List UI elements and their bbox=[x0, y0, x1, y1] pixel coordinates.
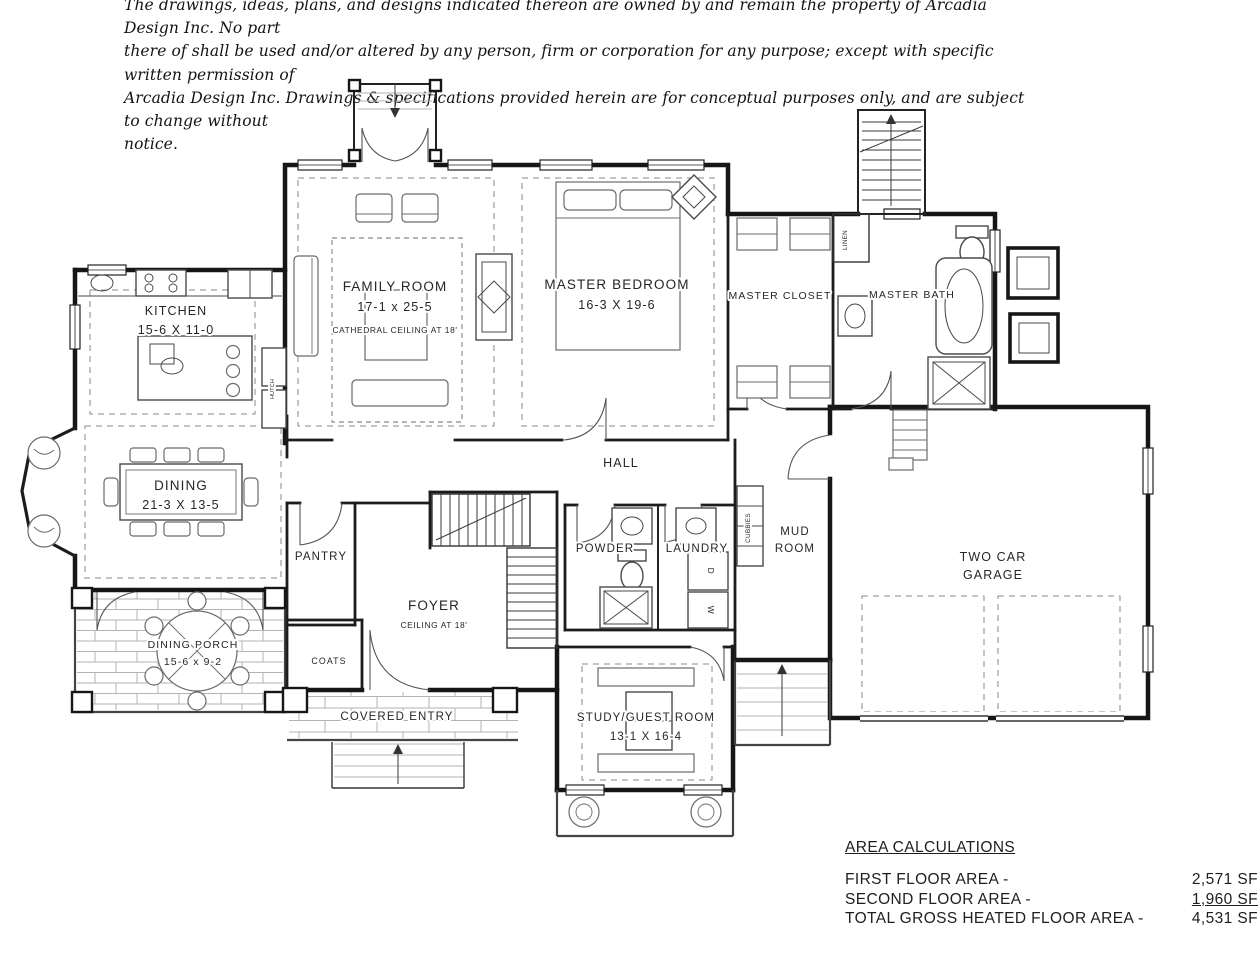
hall-label: HALL bbox=[603, 456, 639, 470]
sofa bbox=[352, 380, 448, 406]
linen-closet bbox=[833, 214, 869, 262]
area-row-second-floor: SECOND FLOOR AREA - 1,960 SF bbox=[845, 890, 1258, 910]
dining-porch-label: DINING PORCH bbox=[148, 639, 239, 651]
exterior-pad bbox=[1010, 314, 1058, 362]
pillow bbox=[564, 190, 616, 210]
chair bbox=[164, 448, 190, 462]
front-stoop bbox=[349, 80, 441, 162]
vanity bbox=[838, 296, 872, 336]
porch-chair bbox=[231, 667, 249, 685]
area-row-value: 2,571 SF bbox=[1192, 870, 1258, 890]
laundry-label: LAUNDRY bbox=[666, 543, 728, 555]
chair bbox=[244, 478, 258, 506]
garage-label-2: GARAGE bbox=[963, 568, 1023, 582]
dining-label: DINING bbox=[154, 478, 208, 493]
porch-chair bbox=[231, 617, 249, 635]
chair bbox=[198, 448, 224, 462]
area-row-label: FIRST FLOOR AREA - bbox=[845, 870, 1009, 890]
area-row-label: TOTAL GROSS HEATED FLOOR AREA - bbox=[845, 909, 1144, 929]
study-label: STUDY/GUEST ROOM bbox=[577, 712, 715, 724]
stool bbox=[227, 346, 240, 359]
garage-entry-door bbox=[788, 435, 830, 479]
area-calculations: AREA CALCULATIONS FIRST FLOOR AREA - 2,5… bbox=[845, 839, 1258, 929]
french-doors bbox=[362, 128, 428, 161]
porch-column bbox=[691, 797, 721, 827]
shrub bbox=[28, 515, 60, 547]
study-furniture bbox=[569, 668, 721, 827]
area-calculations-title: AREA CALCULATIONS bbox=[845, 839, 1015, 857]
mud-room-label-2: ROOM bbox=[775, 543, 815, 555]
master-bedroom-label: MASTER BEDROOM bbox=[544, 277, 689, 292]
kitchen-label: KITCHEN bbox=[145, 304, 208, 318]
master-bath-door bbox=[851, 371, 891, 409]
stool bbox=[227, 365, 240, 378]
bathtub bbox=[936, 258, 992, 354]
master-bath-fixtures bbox=[838, 226, 1058, 409]
kitchen-sink bbox=[91, 275, 113, 291]
dining-dims: 21-3 X 13-5 bbox=[142, 498, 219, 512]
chair bbox=[198, 522, 224, 536]
powder-label: POWDER bbox=[576, 543, 634, 555]
family-room-label: FAMILY ROOM bbox=[343, 279, 448, 294]
laundry-sink bbox=[676, 508, 716, 544]
porch-chair bbox=[145, 617, 163, 635]
armchair bbox=[356, 194, 392, 222]
armchair bbox=[402, 194, 438, 222]
study-dims: 13-1 X 16-4 bbox=[610, 731, 682, 743]
front-door bbox=[370, 630, 430, 690]
coats-label: COATS bbox=[311, 656, 346, 666]
garage-label-1: TWO CAR bbox=[960, 550, 1027, 564]
master-bedroom-furniture bbox=[556, 175, 716, 350]
rear-porch-steps bbox=[737, 664, 828, 736]
covered-entry-label: COVERED ENTRY bbox=[340, 711, 453, 723]
powder-door bbox=[577, 505, 615, 543]
fireplace bbox=[476, 254, 512, 340]
floor-plan: FAMILY ROOM 17-1 x 25-5 CATHEDRAL CEILIN… bbox=[0, 0, 1258, 954]
chair bbox=[130, 522, 156, 536]
garage-bay-1 bbox=[862, 596, 984, 712]
exterior-pad bbox=[1008, 248, 1058, 298]
dining-furniture bbox=[28, 437, 258, 547]
hutch-label: HUTCH bbox=[270, 379, 276, 399]
area-row-first-floor: FIRST FLOOR AREA - 2,571 SF bbox=[845, 870, 1258, 890]
washer-label: W bbox=[706, 606, 716, 615]
shrub bbox=[28, 437, 60, 469]
garage-steps bbox=[893, 410, 927, 460]
toilet-tank bbox=[956, 226, 988, 238]
porch-column bbox=[569, 797, 599, 827]
chair bbox=[130, 448, 156, 462]
stool bbox=[227, 384, 240, 397]
porch-chair bbox=[188, 592, 206, 610]
area-row-label: SECOND FLOOR AREA - bbox=[845, 890, 1031, 910]
back-stair-block bbox=[858, 110, 925, 214]
vanity bbox=[612, 508, 652, 544]
mud-room-label-1: MUD bbox=[780, 526, 810, 538]
area-row-value: 1,960 SF bbox=[1192, 890, 1258, 910]
master-bedroom-door bbox=[564, 398, 606, 440]
bench bbox=[598, 754, 694, 772]
garage-bay-2 bbox=[998, 596, 1120, 712]
laundry-fixtures bbox=[676, 508, 728, 628]
cubbies-label: CUBBIES bbox=[745, 513, 752, 543]
master-bedroom-dims: 16-3 X 19-6 bbox=[578, 298, 655, 312]
linen-label: LINEN bbox=[842, 230, 849, 250]
family-room-dims: 17-1 x 25-5 bbox=[357, 300, 432, 314]
kitchen-dims: 15-6 X 11-0 bbox=[138, 323, 215, 337]
pantry-label: PANTRY bbox=[295, 551, 347, 563]
porch-chair bbox=[188, 692, 206, 710]
chair bbox=[104, 478, 118, 506]
sofa bbox=[294, 256, 318, 356]
foyer-label: FOYER bbox=[408, 598, 460, 613]
foyer-note: CEILING AT 18' bbox=[401, 620, 468, 630]
pillow bbox=[620, 190, 672, 210]
toilet bbox=[621, 562, 643, 590]
master-bath-label: MASTER BATH bbox=[869, 289, 955, 301]
area-row-total: TOTAL GROSS HEATED FLOOR AREA - 4,531 SF bbox=[845, 909, 1258, 929]
family-room-note: CATHEDRAL CEILING AT 18' bbox=[332, 325, 457, 335]
pantry-door bbox=[300, 503, 342, 545]
area-row-value: 4,531 SF bbox=[1192, 909, 1258, 929]
range bbox=[136, 270, 186, 296]
chair bbox=[164, 522, 190, 536]
bench bbox=[598, 668, 694, 686]
dining-porch-dims: 15-6 x 9-2 bbox=[164, 656, 222, 668]
master-closet-label: MASTER CLOSET bbox=[729, 290, 832, 302]
porch-chair bbox=[145, 667, 163, 685]
dryer-label: D bbox=[706, 568, 716, 575]
